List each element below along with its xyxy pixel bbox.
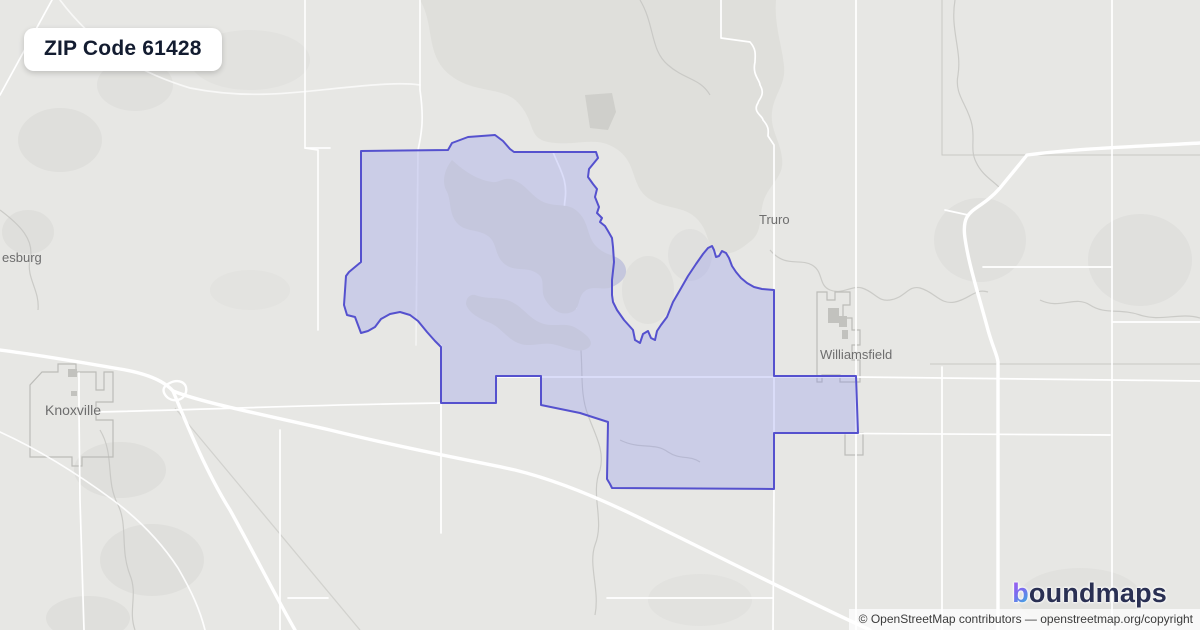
zip-title-badge: ZIP Code 61428	[24, 28, 222, 71]
place-label-knoxville: Knoxville	[45, 402, 101, 418]
map-canvas: esburg Knoxville Truro Williamsfield ZIP…	[0, 0, 1200, 630]
logo-b-icon: b	[1012, 578, 1029, 608]
osm-attribution: © OpenStreetMap contributors — openstree…	[849, 609, 1200, 630]
place-label-truro: Truro	[759, 212, 790, 227]
zip-boundary-fill	[344, 135, 858, 489]
zip-title-text: ZIP Code 61428	[44, 37, 202, 60]
logo-wordmark: oundmaps	[1029, 578, 1167, 608]
osm-attribution-text: © OpenStreetMap contributors — openstree…	[859, 612, 1193, 626]
place-label-galesburg: esburg	[2, 250, 42, 265]
basemap	[0, 0, 1200, 630]
williamsfield-outline	[817, 292, 860, 382]
place-label-williamsfield: Williamsfield	[820, 347, 892, 362]
boundmaps-logo: boundmaps	[1012, 580, 1167, 607]
